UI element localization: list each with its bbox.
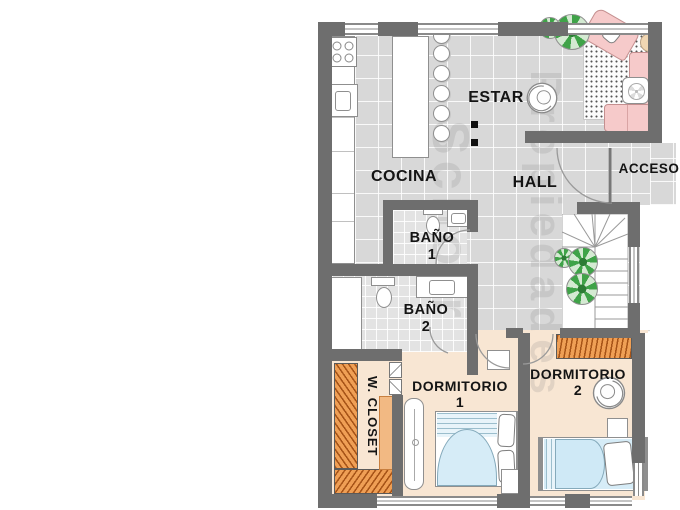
window <box>590 496 632 506</box>
room-label-estar: ESTAR <box>456 89 536 107</box>
wall <box>497 494 530 508</box>
window <box>377 496 497 506</box>
wall <box>318 264 478 276</box>
room-label-dorm2: DORMITORIO 2 <box>526 366 630 398</box>
pillow <box>603 441 635 487</box>
wall <box>385 200 478 210</box>
kitchen-island <box>392 36 429 158</box>
floor-plan: Schorr Propiedades <box>0 0 680 510</box>
room-label-dorm1-text: DORMITORIO <box>406 378 514 394</box>
counter-seam <box>331 151 354 152</box>
room-label-bano1-number: 1 <box>403 247 461 264</box>
window <box>629 247 639 303</box>
flower-vase <box>628 83 645 100</box>
wall <box>518 333 530 500</box>
wall <box>378 22 418 36</box>
counter-seam <box>331 117 354 118</box>
window <box>633 463 644 496</box>
exterior-right-of-stairs <box>640 205 680 330</box>
mirror-knob <box>412 439 419 446</box>
room-label-bano2-number: 2 <box>397 319 455 336</box>
duvet-arch <box>437 429 497 486</box>
wall <box>498 22 568 36</box>
room-label-closet: W. CLOSET <box>355 366 379 466</box>
wall <box>560 328 640 338</box>
sofa-seam <box>627 105 628 131</box>
wall <box>648 22 662 143</box>
sink-basin <box>429 280 455 295</box>
room-label-dorm1: DORMITORIO 1 <box>406 378 514 410</box>
pillow <box>497 414 516 448</box>
kitchen-counter <box>330 36 355 264</box>
wall <box>392 395 403 500</box>
bifold-door-panel <box>389 362 402 378</box>
wall <box>328 349 402 361</box>
room-label-dorm2-number: 2 <box>526 382 630 398</box>
room-label-bano2-text: BAÑO <box>397 302 455 319</box>
coffee-table <box>622 77 649 104</box>
wall <box>577 202 640 214</box>
toilet-bowl <box>376 287 392 308</box>
wall <box>525 131 662 143</box>
standing-mirror <box>404 398 424 490</box>
wall <box>467 200 478 232</box>
counter-seam <box>331 193 354 194</box>
wall <box>565 494 590 508</box>
bathroom-vanity <box>332 277 362 351</box>
room-label-acceso: ACCESO <box>618 161 680 177</box>
stove-icon <box>329 37 357 67</box>
bar-stool <box>433 65 450 82</box>
sink-basin <box>451 213 466 224</box>
bar-stool <box>433 125 450 142</box>
bar-stool <box>433 85 450 102</box>
bar-stool <box>433 45 450 62</box>
window <box>530 496 565 506</box>
window <box>345 23 378 35</box>
kitchen-sink <box>329 84 358 117</box>
sofa-bottom <box>604 104 651 132</box>
window <box>418 23 498 35</box>
wall <box>632 333 645 463</box>
toilet-tank <box>371 277 395 286</box>
room-label-dorm1-number: 1 <box>406 394 514 410</box>
exterior-right-of-dorm2 <box>645 333 680 500</box>
wall <box>342 494 377 508</box>
room-label-hall: HALL <box>504 174 566 192</box>
room-label-cocina: COCINA <box>364 168 444 186</box>
room-label-bano1: BAÑO 1 <box>403 230 461 263</box>
wall <box>628 214 640 247</box>
room-label-bano1-text: BAÑO <box>403 230 461 247</box>
plant <box>566 273 598 305</box>
bathroom-counter <box>416 276 468 298</box>
room-label-bano2: BAÑO 2 <box>397 302 455 335</box>
staircase <box>562 214 628 334</box>
bifold-door-panel <box>389 379 402 395</box>
room-label-dorm2-text: DORMITORIO <box>526 366 630 382</box>
wardrobe-shelves <box>334 469 398 494</box>
bar-stool <box>433 105 450 122</box>
ceiling-light <box>471 121 478 128</box>
ceiling-light <box>471 139 478 146</box>
window <box>568 23 648 35</box>
wall <box>318 494 342 508</box>
wall <box>467 276 478 375</box>
nightstand <box>487 350 510 370</box>
duvet-arch <box>555 439 605 489</box>
kitchen-sink-basin <box>335 91 351 111</box>
counter-seam <box>331 221 354 222</box>
